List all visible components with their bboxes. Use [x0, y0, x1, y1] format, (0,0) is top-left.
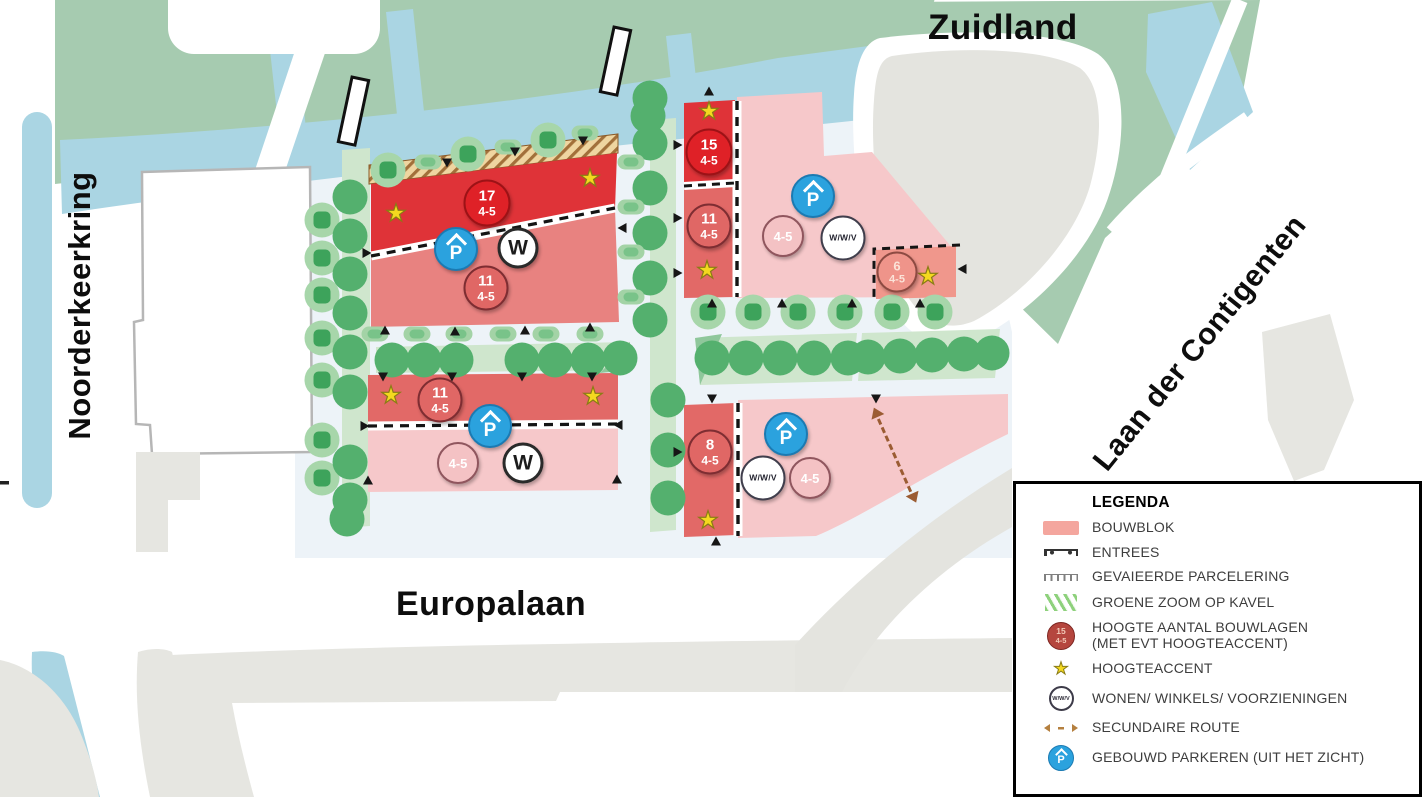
- street-label-europalaan: Europalaan: [396, 585, 586, 624]
- entrance-marker: [517, 373, 527, 382]
- entrance-marker: [915, 299, 925, 308]
- bouwblok-legend-symbol: [1043, 521, 1079, 535]
- legend-title: LEGENDA: [1092, 494, 1415, 512]
- entrance-marker: [520, 326, 530, 335]
- tree: [633, 303, 668, 338]
- legend-item: W/W/VWONEN/ WINKELS/ VOORZIENINGEN: [1030, 686, 1415, 711]
- groene-zoom-legend-symbol: [1045, 594, 1077, 611]
- tree: [851, 340, 886, 375]
- ster-legend-symbol: ★: [1053, 660, 1068, 677]
- tree: [371, 153, 406, 188]
- entrance-marker: [674, 268, 683, 278]
- tree: [333, 445, 368, 480]
- height-accent-star: ★: [917, 265, 939, 289]
- bush: [618, 245, 645, 260]
- height-accent-star: ★: [380, 384, 402, 408]
- entrance-marker: [674, 140, 683, 150]
- entrees-legend-symbol: [1044, 549, 1078, 557]
- tree: [828, 295, 863, 330]
- tree: [651, 383, 686, 418]
- legend-item-label: GROENE ZOOM OP KAVEL: [1092, 595, 1274, 611]
- site-plan-map: ★★★★★★★★174-5154-5114-5114-5114-584-564-…: [0, 0, 1422, 797]
- bouwlagen-badge: 64-5: [877, 252, 918, 293]
- wonen-winkels-voorzieningen-badge: W/W/V: [821, 216, 866, 261]
- bush: [618, 200, 645, 215]
- entrance-marker: [707, 395, 717, 404]
- tree: [651, 481, 686, 516]
- tree: [451, 137, 486, 172]
- bouwlagen-badge: 4-5: [789, 457, 831, 499]
- parkeren-legend-symbol: P: [1048, 745, 1074, 771]
- bush: [415, 155, 442, 170]
- tree: [736, 295, 771, 330]
- legend-items: BOUWBLOKENTREESGEVAIEERDE PARCELERINGGRO…: [1030, 520, 1415, 771]
- legend-item-label: GEBOUWD PARKEREN (UIT HET ZICHT): [1092, 750, 1364, 766]
- legend-item: SECUNDAIRE ROUTE: [1030, 720, 1415, 736]
- tree: [729, 341, 764, 376]
- legend-item: GROENE ZOOM OP KAVEL: [1030, 594, 1415, 611]
- tree: [333, 180, 368, 215]
- entrance-marker: [585, 323, 595, 332]
- entrance-marker: [618, 223, 627, 233]
- entrance-marker: [363, 248, 372, 258]
- entrance-marker: [587, 373, 597, 382]
- entrance-marker: [380, 326, 390, 335]
- legend-item-label: WONEN/ WINKELS/ VOORZIENINGEN: [1092, 691, 1348, 707]
- height-accent-star: ★: [697, 509, 719, 533]
- tree: [333, 296, 368, 331]
- legend-item: ★HOOGTEACCENT: [1030, 660, 1415, 677]
- wonen-badge: W: [498, 228, 539, 269]
- tree: [695, 341, 730, 376]
- entrance-marker: [442, 159, 452, 168]
- entrance-marker: [704, 87, 714, 96]
- entrance-marker: [958, 264, 967, 274]
- bush: [533, 327, 560, 342]
- entrance-marker: [361, 421, 370, 431]
- tree: [915, 338, 950, 373]
- legend-item-label: HOOGTE AANTAL BOUWLAGEN (MET EVT HOOGTEA…: [1092, 620, 1308, 651]
- bush: [490, 327, 517, 342]
- legend: LEGENDA BOUWBLOKENTREESGEVAIEERDE PARCEL…: [1013, 481, 1422, 797]
- height-accent-star: ★: [582, 385, 604, 409]
- bouwlagen-badge: 174-5: [464, 180, 511, 227]
- bouwlagen-badge: 114-5: [687, 204, 732, 249]
- wonen-winkels-voorzieningen-badge: W/W/V: [741, 456, 786, 501]
- tree: [975, 336, 1010, 371]
- entrance-marker: [614, 420, 623, 430]
- entrance-marker: [777, 299, 787, 308]
- wonen-badge: W: [503, 443, 544, 484]
- tree: [531, 123, 566, 158]
- entrance-marker: [510, 148, 520, 157]
- street-label-zuidland: Zuidland: [928, 8, 1078, 48]
- bouwlagen-badge: 4-5: [762, 215, 804, 257]
- height-accent-star: ★: [696, 259, 718, 283]
- parking-badge: P: [434, 227, 478, 271]
- tree: [603, 341, 638, 376]
- legend-item-label: BOUWBLOK: [1092, 520, 1175, 536]
- tree: [883, 339, 918, 374]
- parking-badge: P: [468, 404, 512, 448]
- tree: [763, 341, 798, 376]
- tree: [333, 257, 368, 292]
- bush: [404, 327, 431, 342]
- tree: [797, 341, 832, 376]
- tree: [407, 343, 442, 378]
- tree: [333, 375, 368, 410]
- entrance-marker: [674, 447, 683, 457]
- tree: [633, 81, 668, 116]
- tree: [875, 295, 910, 330]
- bouwlagen-badge: 114-5: [418, 378, 463, 423]
- parking-badge: P: [764, 412, 808, 456]
- legend-item-label: ENTREES: [1092, 545, 1160, 561]
- legend-item-label: SECUNDAIRE ROUTE: [1092, 720, 1240, 736]
- height-accent-star: ★: [385, 202, 407, 226]
- legend-item: 154-5HOOGTE AANTAL BOUWLAGEN (MET EVT HO…: [1030, 620, 1415, 651]
- entrance-marker: [578, 137, 588, 146]
- legend-item: PGEBOUWD PARKEREN (UIT HET ZICHT): [1030, 745, 1415, 771]
- route-legend-symbol: [1040, 723, 1082, 733]
- bouwlagen-badge: 154-5: [686, 129, 733, 176]
- entrance-marker: [711, 537, 721, 546]
- entrance-marker: [674, 213, 683, 223]
- entrance-marker: [378, 373, 388, 382]
- bouwlagen-badge: 4-5: [437, 442, 479, 484]
- parking-badge: P: [791, 174, 835, 218]
- tree: [330, 502, 365, 537]
- height-accent-star: ★: [698, 100, 720, 124]
- entrance-marker: [450, 327, 460, 336]
- legend-item-label: HOOGTEACCENT: [1092, 661, 1213, 677]
- bouwlagen-badge: 114-5: [464, 266, 509, 311]
- entrance-marker: [707, 299, 717, 308]
- tree: [333, 335, 368, 370]
- parcelering-legend-symbol: [1044, 574, 1078, 581]
- entrance-marker: [847, 299, 857, 308]
- hoogte-legend-symbol: 154-5: [1047, 622, 1075, 650]
- entrance-marker: [363, 476, 373, 485]
- legend-item-label: GEVAIEERDE PARCELERING: [1092, 569, 1290, 585]
- entrance-marker: [612, 475, 622, 484]
- tree: [538, 343, 573, 378]
- legend-item: ENTREES: [1030, 545, 1415, 561]
- height-accent-star: ★: [579, 167, 601, 191]
- street-label-noorderkeerkring: Noorderkeerkring: [62, 133, 98, 478]
- bush: [618, 155, 645, 170]
- wwv-legend-symbol: W/W/V: [1049, 686, 1074, 711]
- bouwlagen-badge: 84-5: [688, 430, 733, 475]
- bush: [618, 290, 645, 305]
- legend-item: GEVAIEERDE PARCELERING: [1030, 569, 1415, 585]
- legend-item: BOUWBLOK: [1030, 520, 1415, 536]
